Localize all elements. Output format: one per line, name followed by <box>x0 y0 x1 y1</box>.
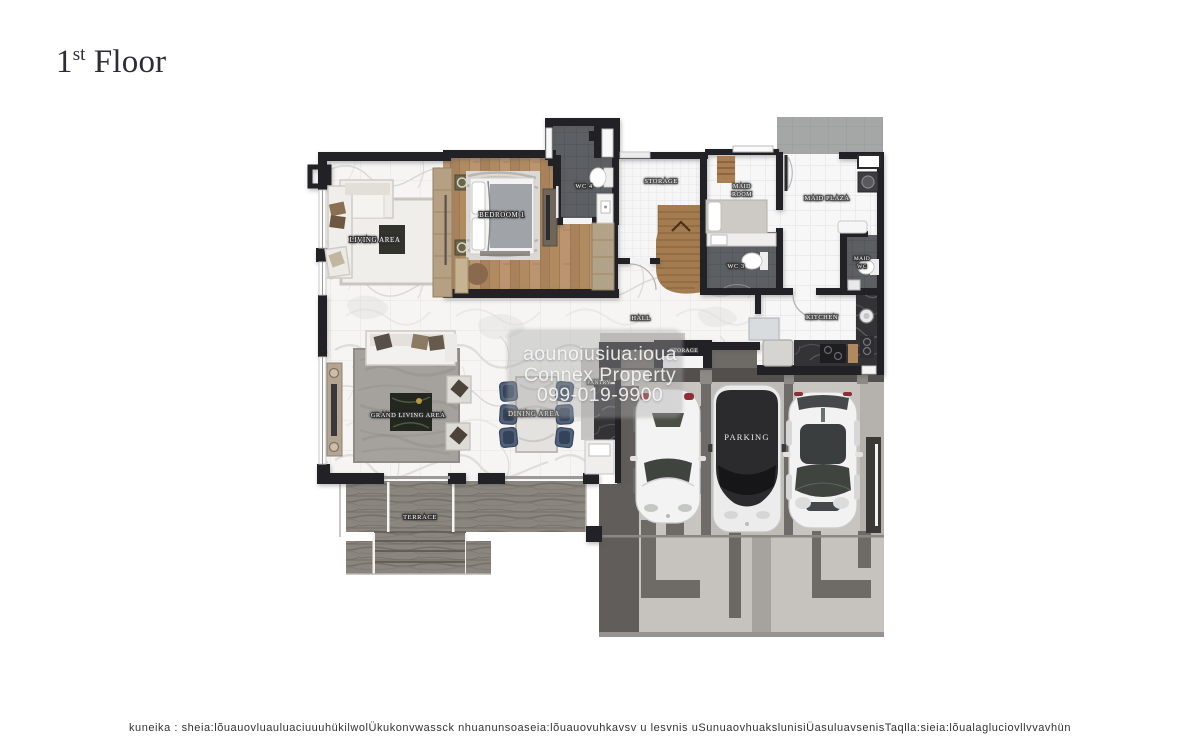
svg-text:WC 3: WC 3 <box>727 263 744 270</box>
svg-text:TERRACE: TERRACE <box>403 514 437 521</box>
svg-text:GRAND LIVING AREA: GRAND LIVING AREA <box>371 412 446 419</box>
svg-text:BEDROOM 1: BEDROOM 1 <box>479 211 525 219</box>
svg-text:WC 4: WC 4 <box>575 183 593 190</box>
svg-text:HALL: HALL <box>631 315 650 322</box>
svg-text:MAID PLAZA: MAID PLAZA <box>805 195 850 202</box>
svg-text:LIVING AREA: LIVING AREA <box>349 236 400 244</box>
svg-text:ROOM: ROOM <box>732 192 752 198</box>
svg-text:KITCHEN: KITCHEN <box>806 314 838 321</box>
svg-text:MAID: MAID <box>854 256 870 262</box>
svg-text:WC: WC <box>857 264 867 270</box>
svg-text:PARKING: PARKING <box>724 432 769 442</box>
svg-text:MAID: MAID <box>733 184 751 190</box>
svg-text:STORAGE: STORAGE <box>644 178 677 185</box>
